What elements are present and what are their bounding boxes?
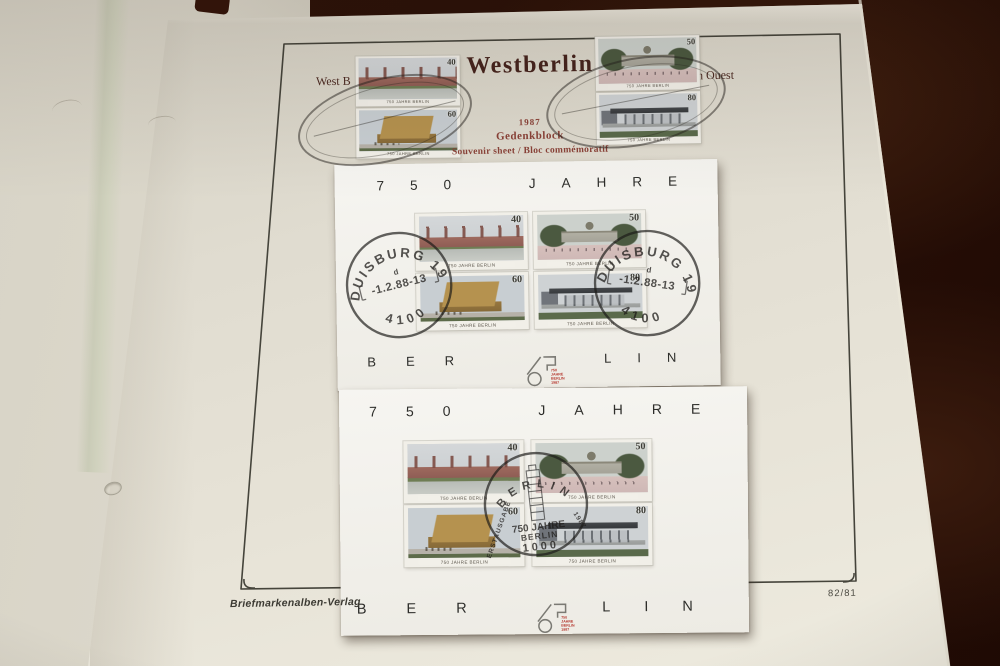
footer-letters-ber: BER — [357, 600, 507, 617]
svg-text:4100: 4100 — [617, 301, 668, 329]
svg-text:d: d — [393, 267, 400, 277]
postmark-first-day-berlin: BERLIN ERSTAUSGABE 1987 750 JAHRE BERLIN… — [470, 438, 603, 571]
anniversary-750-logo: 750 JAHRE BERLIN 1987 — [523, 351, 566, 388]
stamp-value: 80 — [636, 505, 646, 516]
svg-text:ERSTAUSGABE: ERSTAUSGABE — [486, 500, 513, 559]
publisher-imprint: Briefmarkenalben-Verlag — [230, 596, 361, 610]
svg-text:1987: 1987 — [561, 628, 569, 632]
anniversary-750-logo: 750 JAHRE BERLIN 1987 — [532, 600, 576, 634]
sheet-footer: BER 750 JAHRE BERLIN 1987 LIN — [367, 349, 703, 390]
border-corner-flourish-left — [244, 579, 255, 588]
souvenir-sheet-2: 750 JAHRE 40 750 JAHRE BERLIN 50 750 JAH… — [339, 386, 749, 636]
stamp-value: 60 — [512, 274, 522, 285]
stamp-value: 50 — [635, 441, 645, 452]
svg-text:1987: 1987 — [551, 381, 559, 385]
sheet-footer: BER 750 JAHRE BERLIN 1987 LIN — [357, 598, 727, 635]
svg-text:-1.2.88-13: -1.2.88-13 — [370, 272, 428, 297]
stamp-value: 40 — [511, 214, 521, 225]
page-number: 82/81 — [828, 588, 857, 600]
footer-letters-ber: BER — [367, 353, 484, 370]
stamp-value: 40 — [447, 57, 456, 67]
svg-text:-1.2.88-13: -1.2.88-13 — [618, 273, 676, 293]
stamp-value: 50 — [687, 36, 696, 46]
svg-text:d: d — [646, 265, 652, 275]
sheet-header: 750 JAHRE — [376, 173, 703, 193]
footer-letters-lin: LIN — [604, 349, 702, 366]
postmark-duisburg: DUISBURG 19 d -1.2.88-13 4100 — [580, 216, 713, 349]
tower-illustration — [526, 465, 545, 521]
souvenir-sheet-1: 750 JAHRE 40 750 JAHRE BERLIN 50 750 JAH… — [334, 159, 721, 391]
svg-text:4100: 4100 — [381, 300, 433, 332]
sheet-header: 750 JAHRE — [369, 400, 729, 419]
caption-west-berlin: West B — [316, 74, 351, 90]
photo-of-stamp-album: Westberlin West B n Ouest 40 750 JAHRE B… — [0, 0, 1000, 666]
footer-letters-lin: LIN — [602, 598, 727, 615]
